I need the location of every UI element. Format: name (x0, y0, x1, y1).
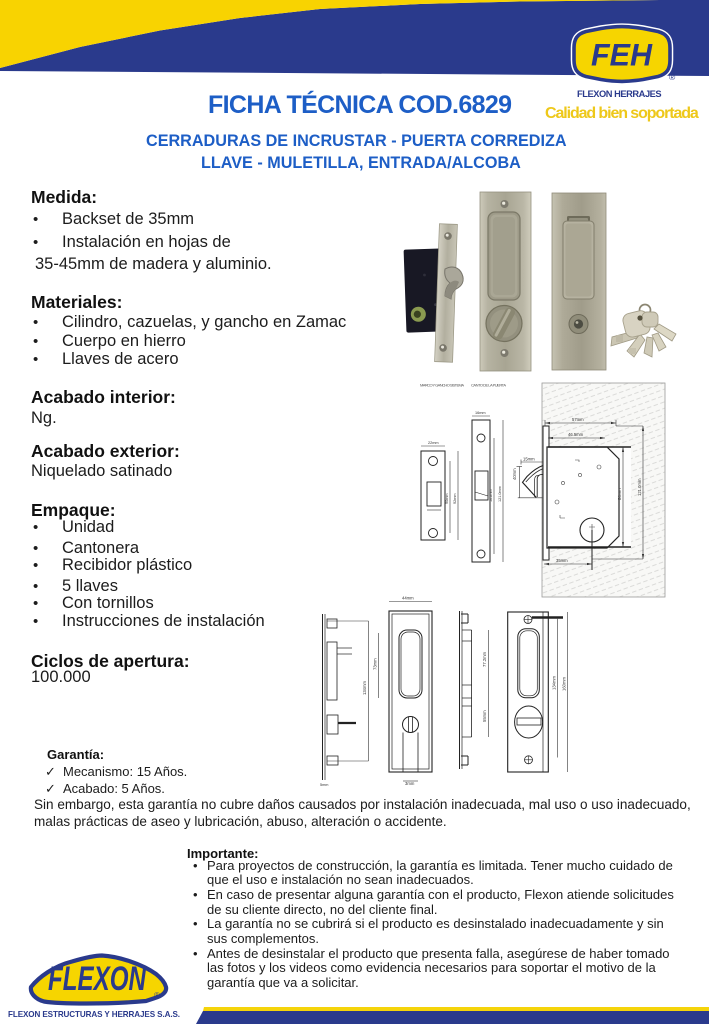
svg-text:160mm: 160mm (562, 677, 567, 691)
svg-text:3mm: 3mm (405, 781, 415, 786)
svg-text:77.2mm: 77.2mm (482, 651, 487, 667)
svg-text:40mm: 40mm (512, 468, 517, 480)
svg-text:15mm: 15mm (523, 457, 535, 462)
svg-text:57mm: 57mm (572, 417, 584, 422)
svg-text:FEH: FEH (591, 37, 653, 73)
svg-text:134mm: 134mm (551, 676, 556, 690)
svg-text:92mm: 92mm (453, 493, 457, 504)
svg-text:16mm: 16mm (475, 411, 486, 415)
svg-text:73mm: 73mm (373, 658, 378, 670)
svg-text:46.5mm: 46.5mm (568, 432, 584, 437)
svg-text:134mm: 134mm (362, 681, 367, 695)
svg-text:161mm: 161mm (489, 489, 493, 502)
svg-text:90mm: 90mm (445, 493, 449, 504)
svg-text:121.0mm: 121.0mm (637, 478, 642, 496)
svg-text:55mm: 55mm (482, 710, 487, 722)
svg-text:5mm: 5mm (320, 783, 328, 787)
svg-text:FLEXON: FLEXON (48, 960, 147, 998)
svg-text:84mm: 84mm (617, 488, 622, 500)
svg-text:44mm: 44mm (402, 596, 414, 601)
svg-text:22mm: 22mm (428, 441, 439, 445)
svg-text:121.0mm: 121.0mm (498, 486, 502, 502)
svg-text:35mm: 35mm (556, 558, 568, 563)
